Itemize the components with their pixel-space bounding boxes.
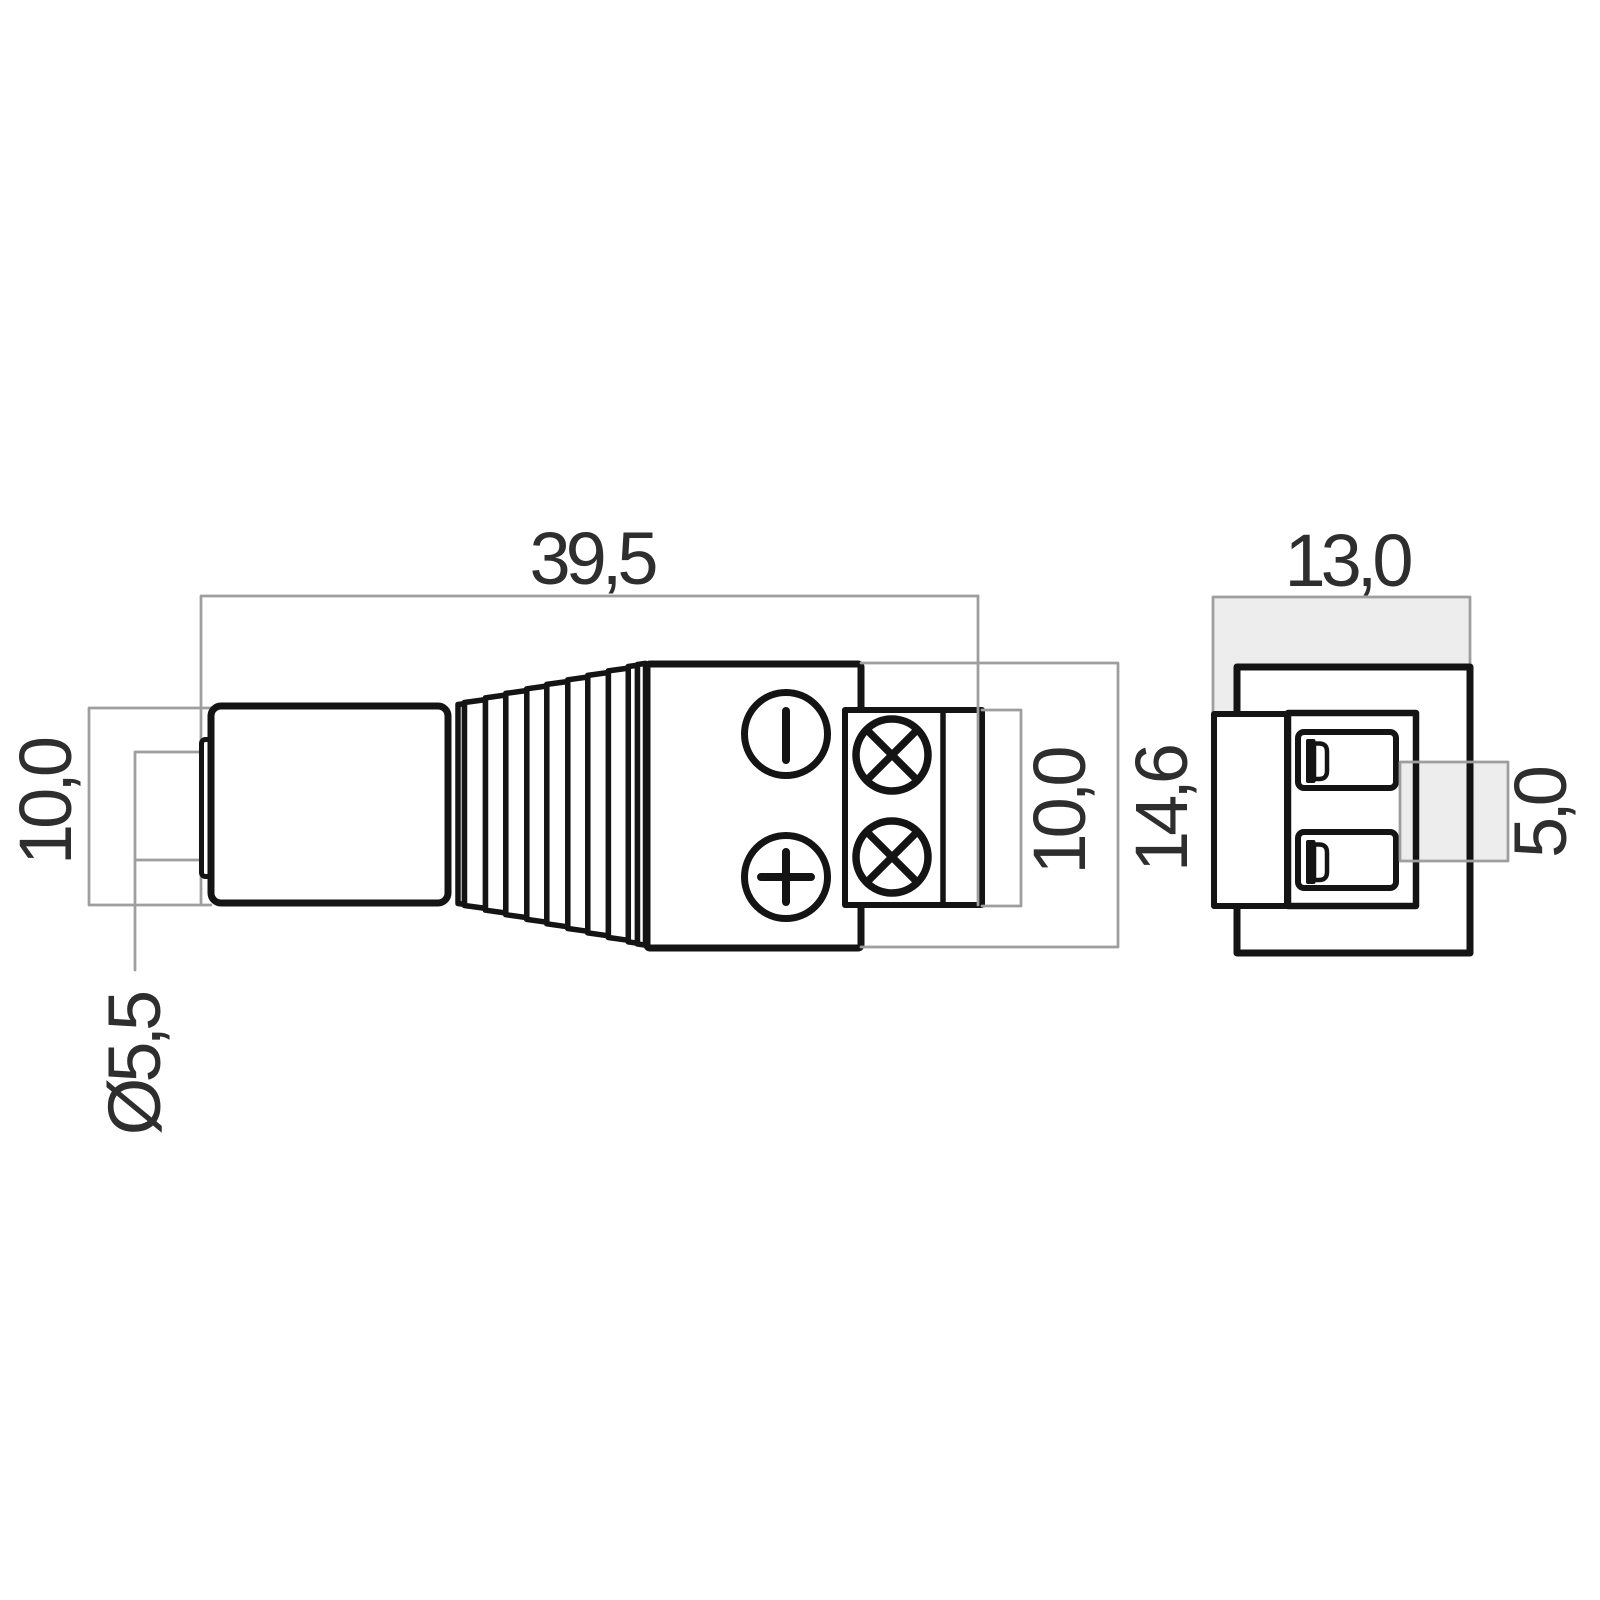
svg-text:Ø5,5: Ø5,5 xyxy=(93,992,176,1135)
svg-text:39,5: 39,5 xyxy=(529,517,656,600)
svg-text:14,6: 14,6 xyxy=(1120,746,1203,872)
svg-text:10,0: 10,0 xyxy=(1018,748,1101,875)
svg-text:10,0: 10,0 xyxy=(4,738,87,865)
svg-text:13,0: 13,0 xyxy=(1284,519,1411,602)
svg-text:5,0: 5,0 xyxy=(1499,767,1582,858)
